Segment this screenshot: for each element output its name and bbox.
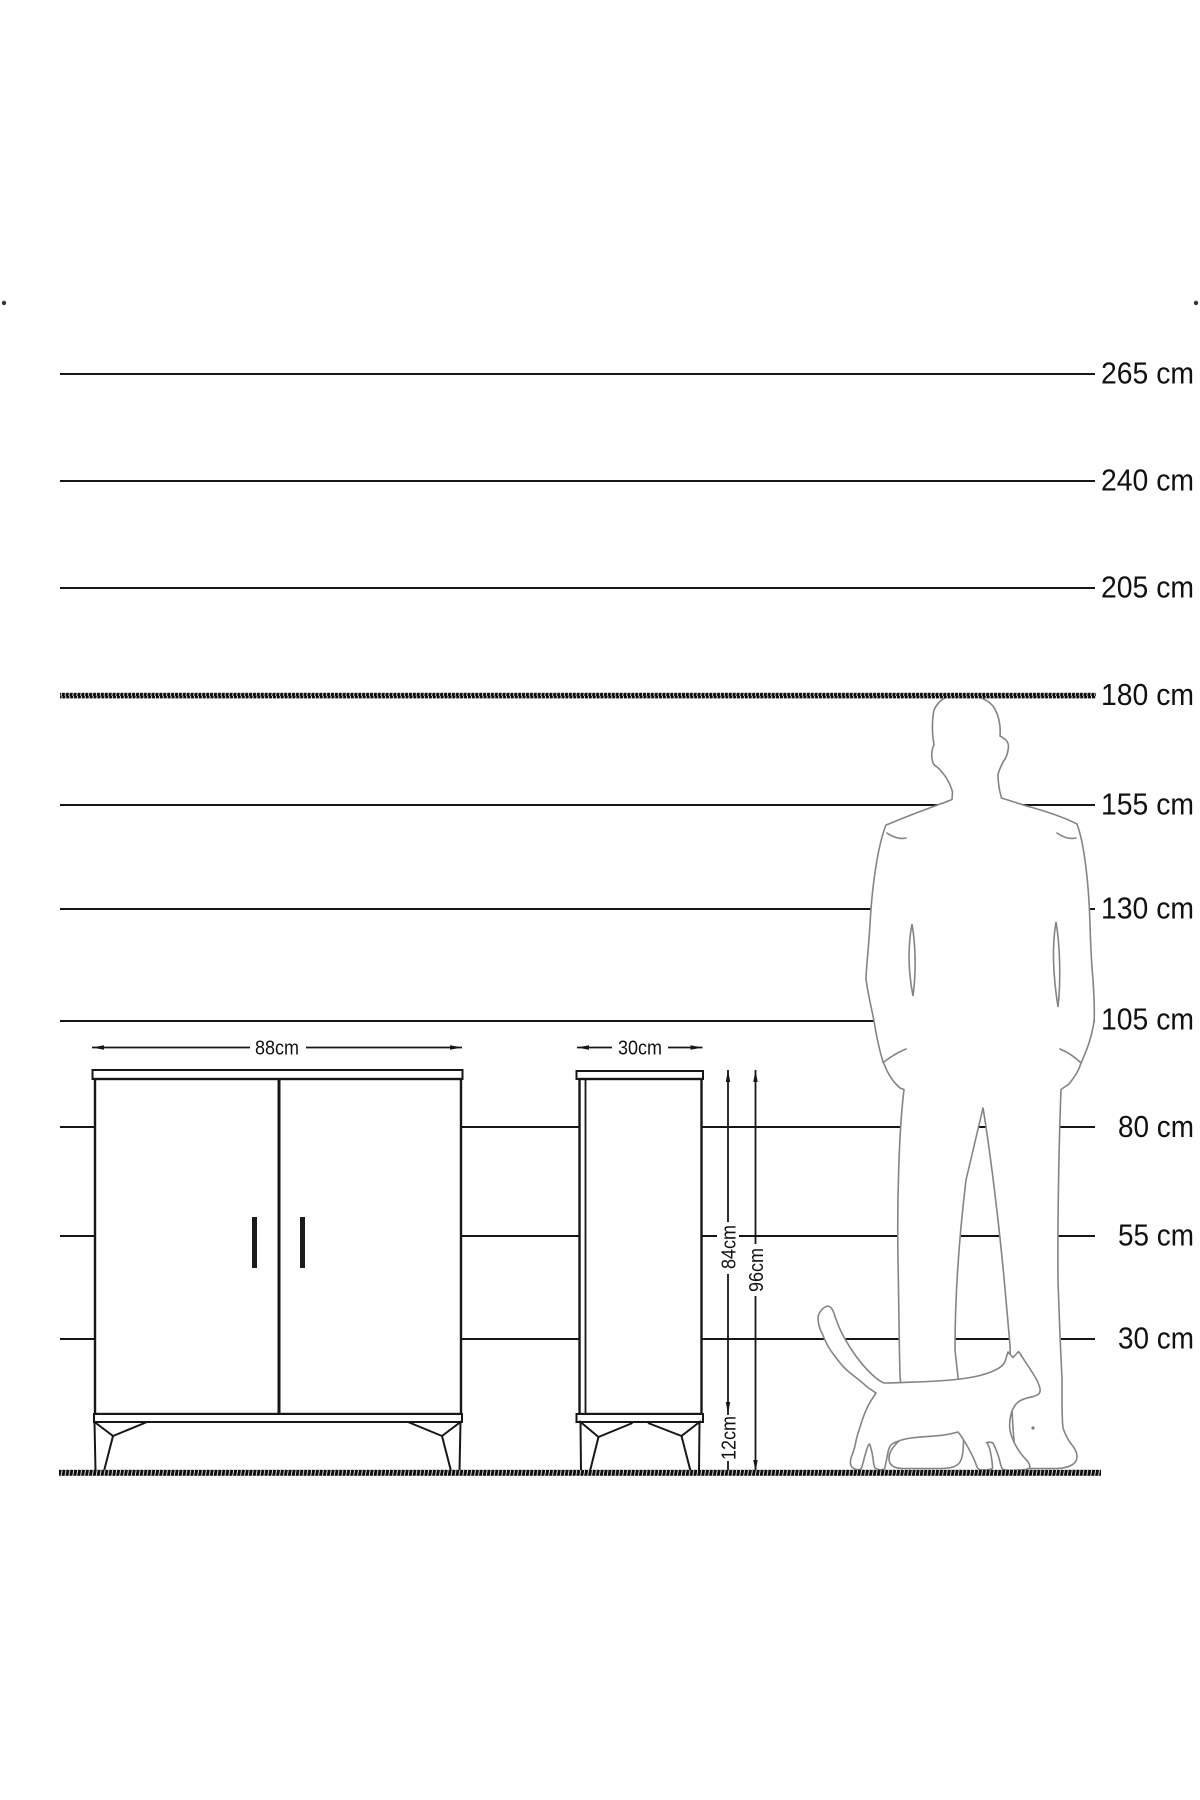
svg-text:180 cm: 180 cm [1101, 677, 1194, 712]
svg-text:240 cm: 240 cm [1101, 463, 1194, 498]
svg-text:84cm: 84cm [719, 1225, 741, 1269]
svg-text:88cm: 88cm [255, 1038, 299, 1060]
svg-text:30 cm: 30 cm [1118, 1321, 1194, 1356]
svg-text:265 cm: 265 cm [1101, 356, 1194, 391]
svg-text:55 cm: 55 cm [1118, 1218, 1194, 1253]
svg-text:130 cm: 130 cm [1101, 891, 1194, 926]
svg-text:80 cm: 80 cm [1118, 1109, 1194, 1144]
svg-text:205 cm: 205 cm [1101, 570, 1194, 605]
svg-text:30cm: 30cm [618, 1038, 662, 1060]
svg-text:105 cm: 105 cm [1101, 1002, 1194, 1037]
svg-text:96cm: 96cm [746, 1248, 768, 1292]
svg-text:12cm: 12cm [719, 1416, 741, 1460]
svg-text:155 cm: 155 cm [1101, 787, 1194, 822]
